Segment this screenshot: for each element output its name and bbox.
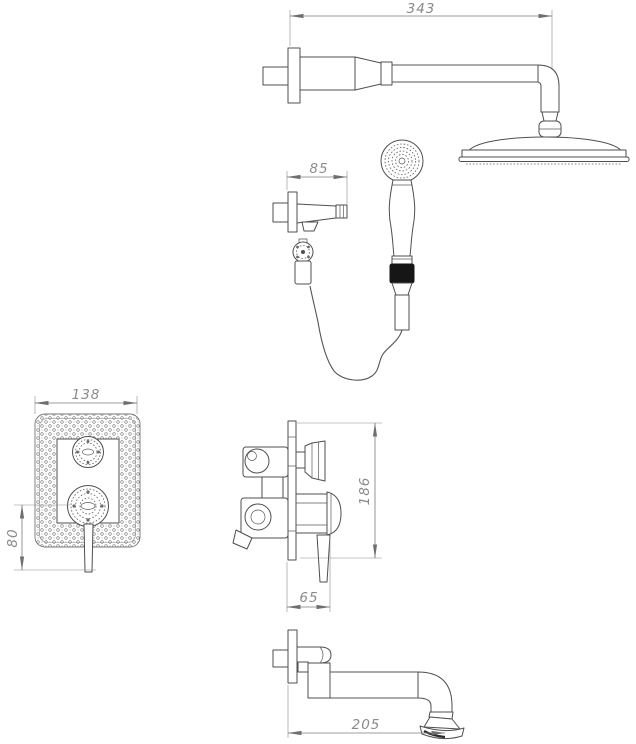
arm-elbow: [538, 65, 559, 112]
spout-wall-nipple: [273, 650, 288, 667]
spout-wall-flange: [288, 630, 297, 683]
spout-mount-cylinder: [297, 647, 331, 663]
holder-arm: [297, 204, 336, 223]
spout-tube-ornate: [330, 672, 418, 698]
arm-taper: [355, 57, 381, 90]
holder-wall-nipple: [273, 203, 288, 222]
overhead-shower-assembly: 343: [263, 1, 629, 164]
ornament-dot: [87, 461, 90, 464]
handle-cap-side: [327, 492, 341, 535]
spout-outlet-flare: [424, 717, 460, 729]
handle-lever-side: [317, 535, 330, 582]
dim-label-65: 65: [299, 590, 318, 606]
valve-mid-body: [262, 477, 283, 498]
escutcheon-body: [300, 57, 355, 90]
ornament-dot: [296, 256, 299, 259]
ornament-dot: [86, 518, 89, 521]
holder-cradle: [336, 205, 347, 218]
dim-label-343: 343: [407, 1, 436, 17]
handle-lever-front: [84, 524, 93, 572]
mixer-trim-side-view: 186 65: [233, 421, 382, 612]
valve-bottom-port-housing: [241, 498, 288, 538]
dim-label-205: 205: [352, 717, 381, 733]
elbow-adapter: [542, 112, 558, 121]
spout-riser: [308, 663, 330, 698]
handle-body-side: [296, 494, 327, 533]
ornament-dot: [86, 490, 89, 493]
handle-rings: [392, 256, 412, 264]
ornament-dot: [97, 451, 100, 454]
hose-spring-guard: [395, 295, 409, 330]
holder-wall-plate: [288, 192, 297, 232]
hand-shower-assembly: 85: [273, 140, 423, 380]
ornament-dot: [76, 451, 79, 454]
diverter-knob-profile: [305, 441, 325, 481]
diverter-knob-side: [296, 441, 325, 481]
hand-shower-face: [381, 140, 423, 182]
diverter-knob-front: [73, 437, 104, 468]
ornament-dot: [87, 440, 90, 443]
wall-supply-elbow: [293, 239, 313, 284]
shower-arm-ornate: [392, 65, 538, 82]
wall-nipple-threaded: [263, 67, 288, 85]
plate-edge-profile: [288, 421, 296, 560]
hand-shower-handle: [389, 180, 414, 256]
mixer-trim-front-view: 138: [5, 387, 140, 572]
ornament-dot: [307, 256, 310, 259]
diverter-stem: [296, 452, 305, 468]
bath-spout-side-view: 205: [273, 630, 464, 739]
rain-head-rim: [459, 157, 629, 162]
dimension-plate-height: 186: [297, 423, 382, 558]
ornament-dot: [100, 504, 103, 507]
concealed-valve-body: [233, 447, 288, 549]
mixer-handle-side: [296, 492, 341, 582]
dim-label-138: 138: [72, 387, 101, 403]
ornament-dot: [72, 504, 75, 507]
wall-flange: [288, 48, 300, 103]
shower-hose: [310, 286, 402, 380]
dim-label-186: 186: [357, 477, 373, 506]
dimension-plate-width: 138: [35, 387, 137, 414]
holder-hook: [302, 222, 318, 231]
handle-grip-band: [390, 264, 414, 283]
arm-collar: [381, 62, 392, 85]
shower-set-technical-drawing: 343 85: [0, 0, 636, 744]
spout-elbow: [418, 672, 452, 712]
supply-elbow-center: [301, 250, 305, 254]
ornament-dot: [296, 246, 299, 249]
hand-shower-front-view: [381, 140, 423, 330]
hose-cone-nut: [392, 283, 412, 295]
dim-label-80: 80: [5, 528, 21, 547]
ornament-dot: [307, 246, 310, 249]
supply-elbow-body: [295, 261, 311, 284]
spout-step: [298, 662, 308, 672]
technical-drawing-page: 343 85: [0, 0, 636, 744]
dim-label-85: 85: [309, 161, 328, 177]
